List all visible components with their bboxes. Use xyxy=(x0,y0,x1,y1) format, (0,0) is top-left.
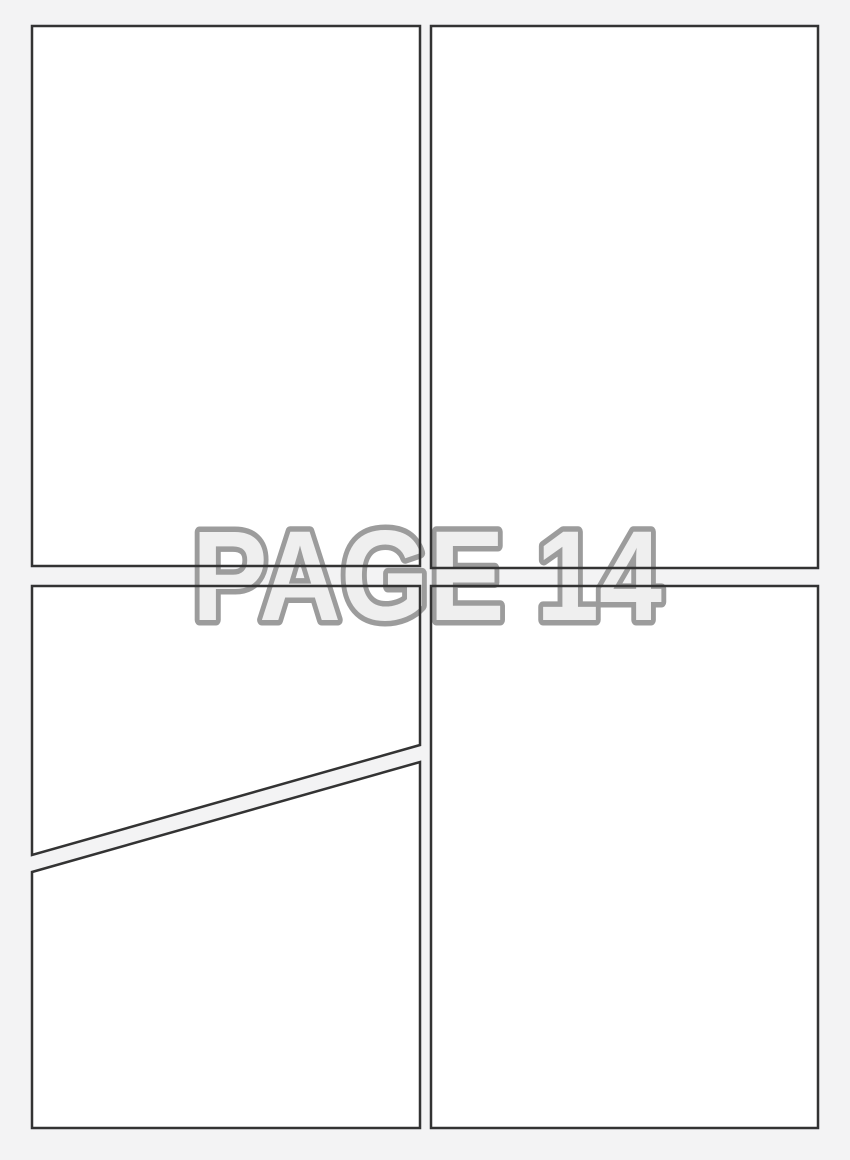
panel-top-right xyxy=(431,26,818,568)
page-number-watermark: PAGE 14 xyxy=(192,505,662,648)
comic-page-template: PAGE 14 xyxy=(0,0,850,1160)
panel-bottom-right xyxy=(431,586,818,1128)
panel-top-left xyxy=(32,26,420,566)
